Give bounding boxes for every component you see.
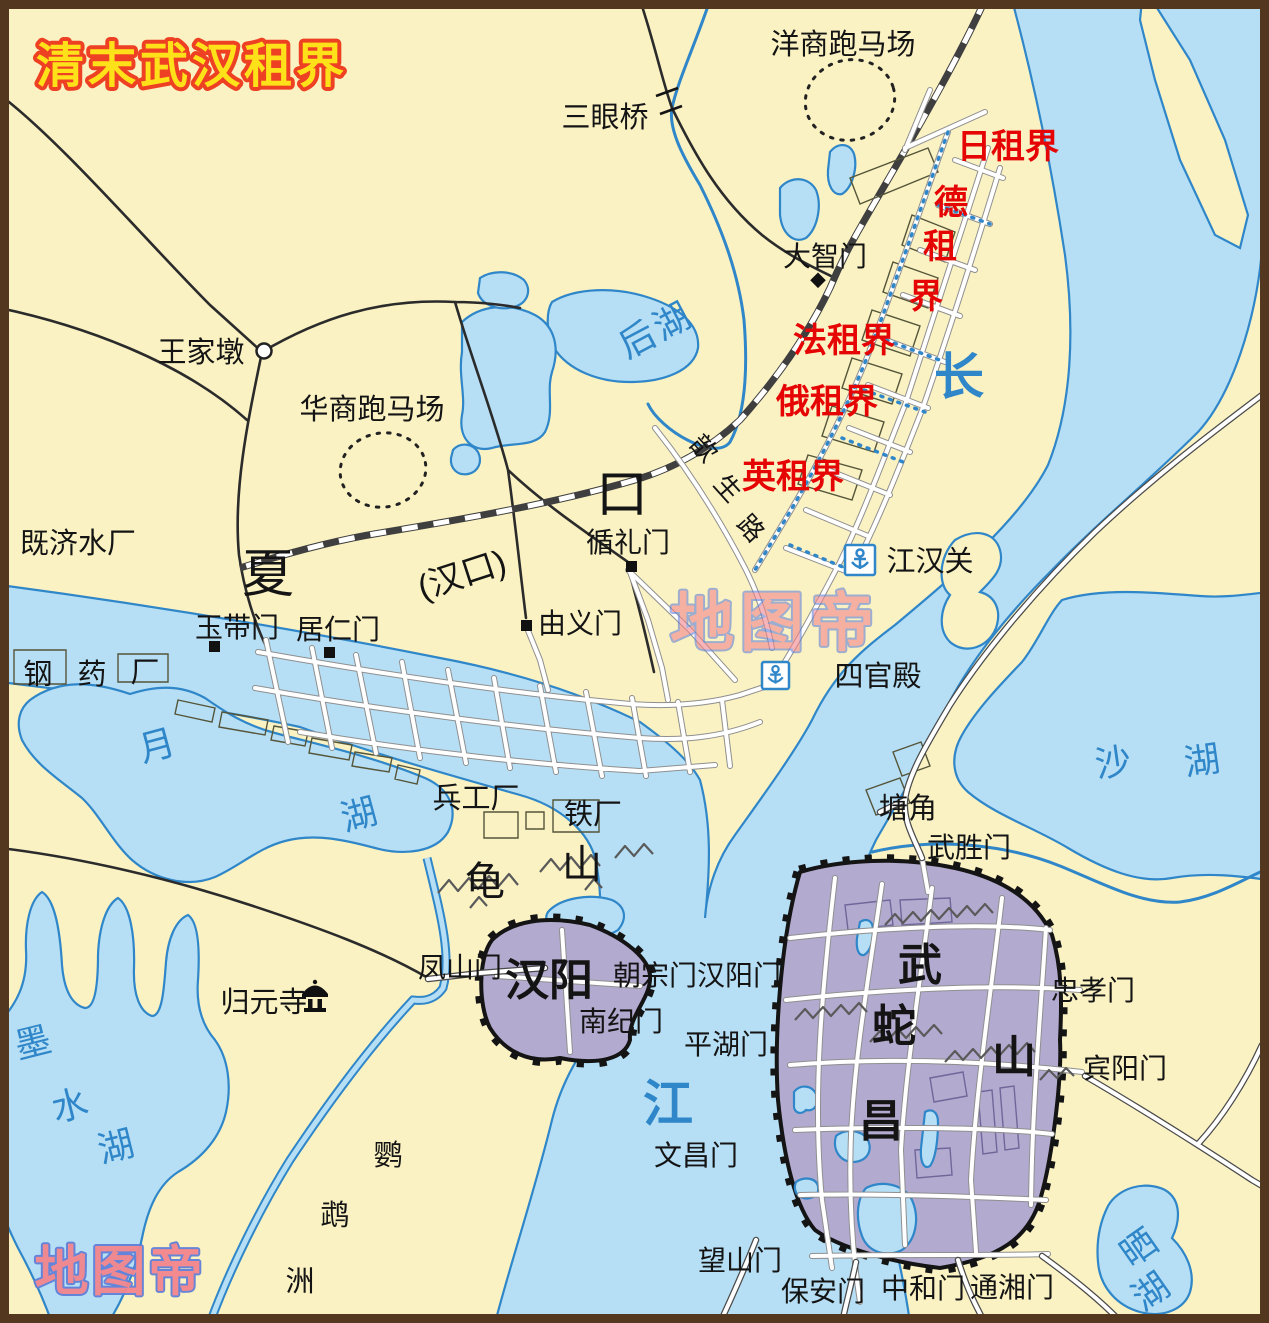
pond-1	[794, 1087, 817, 1113]
germany-concession-jie-label: 界	[909, 278, 943, 316]
wenchangmen-label: 文昌门	[654, 1140, 738, 1171]
dazhimen-label: 大智门	[783, 241, 867, 272]
zhonghemen-label: 中和门	[881, 1273, 965, 1304]
jianghanguan-anchor-icon	[845, 545, 875, 575]
pond-near-dazhimen-1	[780, 179, 819, 240]
chinese-racecourse-label: 华商跑马场	[299, 393, 444, 426]
temple-pillar-left	[308, 999, 313, 1008]
arsenal-label: 兵工厂	[432, 783, 519, 815]
shahu-sha-label: 沙	[1092, 740, 1133, 786]
temple-pillar-right	[318, 999, 323, 1008]
parrot-island-wu-label: 鹉	[320, 1199, 349, 1232]
tongxiangmen-label: 通湘门	[970, 1272, 1054, 1303]
xinsheng-road-lu-label: 路	[731, 509, 771, 548]
map-page: 长 江 后湖 月 湖 墨 水 湖 沙 湖 晒 湖 三眼桥 洋商跑马场 王家墩 华…	[0, 0, 1269, 1323]
germany-concession-zu-label: 租	[923, 228, 957, 266]
ironworks-label: 铁厂	[564, 798, 622, 831]
pond-near-dazhimen-2	[828, 145, 855, 194]
sheshan-shan-label: 山	[992, 1033, 1036, 1082]
watermark-corner: 地图帝	[35, 1242, 206, 1302]
youyimen-label: 由义门	[538, 608, 622, 639]
wangshanmen-label: 望山门	[698, 1245, 782, 1276]
zhongxiaomen-label: 忠孝门	[1051, 975, 1135, 1006]
baoanmen-label: 保安门	[781, 1276, 865, 1307]
russia-concession-label: 俄租界	[775, 383, 878, 421]
jurenmen-marker	[324, 647, 335, 658]
sheshan-she-label: 蛇	[872, 1002, 916, 1051]
fengshanmen-label: 凤山门	[418, 952, 502, 983]
xiakou-xia-label: 夏	[242, 546, 294, 604]
guishan-gui-label: 龟	[465, 860, 505, 904]
chaozong-hanyangmen-label: 朝宗门汉阳门	[613, 960, 781, 991]
siguandian-anchor-icon	[762, 662, 789, 689]
wuhan-concessions-map: 长 江 后湖 月 湖 墨 水 湖 沙 湖 晒 湖 三眼桥 洋商跑马场 王家墩 华…	[0, 0, 1269, 1323]
map-title: 清末武汉租界	[36, 40, 348, 93]
hankou-paren-label: (汉口)	[413, 543, 511, 607]
wushengmen-label: 武胜门	[927, 832, 1011, 863]
parrot-island-ying-label: 鹦	[373, 1139, 402, 1172]
guishan-shan-label: 山	[562, 843, 602, 887]
france-concession-label: 法租界	[793, 322, 895, 360]
tangjiao-label: 塘角	[879, 792, 937, 825]
chinese-racecourse-track	[334, 426, 432, 514]
nanjimen-label: 南纪门	[579, 1006, 663, 1037]
steel-factory-label: 钢	[23, 658, 52, 691]
foreign-racecourse-label: 洋商跑马场	[770, 28, 915, 61]
foreign-racecourse-track	[796, 50, 904, 151]
watermark-center: 地图帝	[670, 587, 880, 659]
binyangmen-label: 宾阳门	[1083, 1053, 1167, 1084]
shahu-hu-label: 湖	[1181, 738, 1222, 784]
wuchang-chang-label: 昌	[859, 1097, 903, 1146]
xunlimen-marker	[626, 561, 637, 572]
wangjiadun-marker	[257, 344, 272, 359]
pinghumen-label: 平湖门	[684, 1029, 768, 1060]
parrot-channel	[210, 858, 446, 1323]
siguandian-label: 四官殿	[834, 660, 921, 693]
yangtze-jiang-label: 江	[643, 1076, 693, 1132]
xiakou-kou-label: 口	[596, 466, 648, 524]
wuchang-wu-label: 武	[898, 941, 942, 990]
wangjiadun-label: 王家墩	[157, 336, 244, 369]
factory-char-label: 厂	[130, 657, 159, 689]
guiyuan-temple-label: 归元寺	[220, 986, 307, 1019]
japan-concession-label: 日租界	[957, 128, 1059, 166]
pond-grid-west	[451, 445, 480, 475]
dazhimen-marker	[810, 273, 826, 289]
sanyanqiao-stream	[648, 0, 746, 448]
parrot-island-zhou-label: 洲	[285, 1266, 314, 1298]
houhu-lake-2	[461, 307, 556, 449]
hanyang-city-label: 汉阳	[505, 956, 593, 1005]
xunlimen-label: 循礼门	[586, 527, 670, 558]
temple-finial	[313, 980, 317, 984]
youyimen-marker	[521, 620, 532, 631]
jianghanguan-label: 江汉关	[886, 545, 973, 578]
jurenmen-label: 居仁门	[296, 614, 380, 645]
parrot-channel-bank	[210, 858, 446, 1323]
britain-concession-label: 英租界	[742, 458, 844, 496]
sanyanqiao-label: 三眼桥	[561, 101, 648, 134]
yangtze-chang-label: 长	[934, 349, 984, 405]
germany-concession-de-label: 德	[934, 184, 968, 222]
medicine-factory-label: 药	[77, 658, 106, 691]
waterworks-label: 既济水厂	[20, 527, 136, 560]
yudaimen-label: 玉带门	[195, 612, 279, 643]
